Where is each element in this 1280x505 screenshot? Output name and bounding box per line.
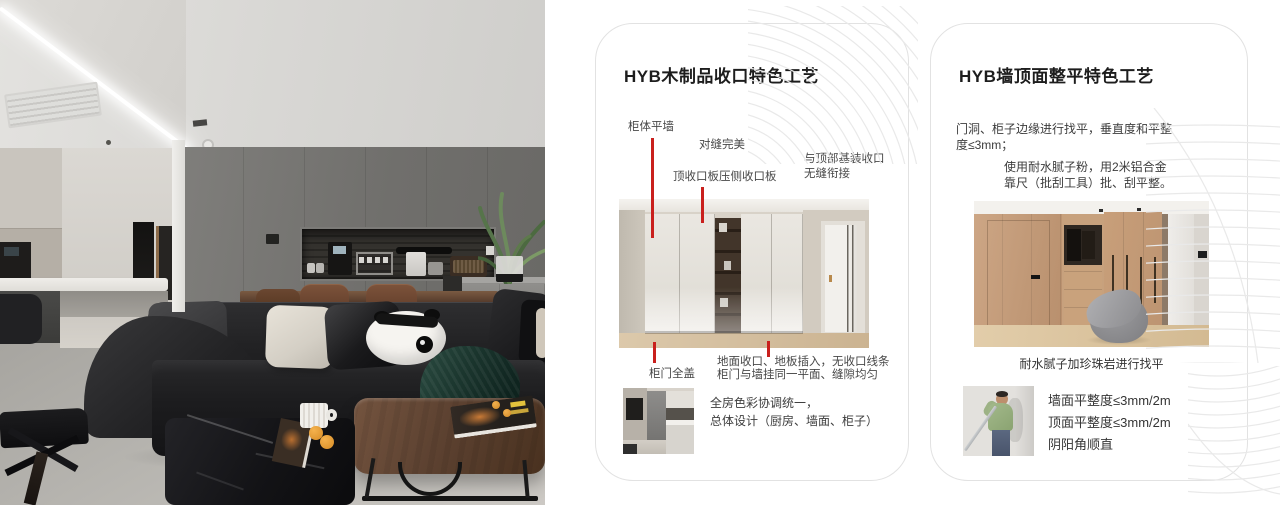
design-summary-line1: 全房色彩协调统一， (710, 394, 878, 412)
spec-ceiling-flatness: 顶面平整度≤3mm/2m (1048, 412, 1171, 434)
hallway-wardrobe-photo (974, 201, 1209, 347)
putty-paragraph-line1: 使用耐水腻子粉，用2米铝合金 (1004, 159, 1172, 175)
photo-downlight (1099, 209, 1103, 212)
grinder (428, 262, 443, 275)
mug-handle (326, 409, 337, 421)
hidden-door-outline (987, 220, 1050, 340)
callout-full-cover-door: 柜门全盖 (649, 367, 695, 382)
floor-join-note: 地面收口、地板插入，无收口线条 柜门与墙挂同一平面、缝隙均匀 (717, 356, 890, 381)
thumb-kitchen-upper (666, 391, 694, 408)
panda-eye-dot (420, 340, 425, 345)
render-side-wall (619, 210, 645, 337)
thumb-kitchen-lower (666, 425, 694, 454)
leader-line (767, 341, 770, 357)
card-wall-leveling-craft: HYB墙顶面整平特色工艺 门洞、柜子边缘进行找平，垂直度和平整 度≤3mm； 使… (930, 23, 1248, 481)
small-orange (492, 401, 500, 409)
door-handle (829, 275, 832, 282)
white-door-ajar (1168, 214, 1194, 341)
small-orange (503, 409, 511, 417)
magazine-cover-art (280, 427, 304, 453)
leveling-paragraph-line2: 度≤3mm； (956, 137, 1172, 153)
floor-join-note-line2: 柜门与墙挂同一平面、缝隙均匀 (717, 369, 890, 382)
leader-line (701, 187, 704, 223)
floor-light-reflection (645, 287, 803, 337)
callout-cabinet-flush-wall: 柜体平墙 (628, 120, 674, 135)
card-wood-trim-craft: HYB木制品收口特色工艺 柜体平墙 对缝完美 顶收口板压侧收口板 与顶部基装收口… (595, 23, 909, 481)
living-room-photo (0, 0, 545, 505)
niche-cup (307, 263, 315, 273)
lounge-chair-back (0, 294, 42, 344)
mug (300, 403, 328, 428)
design-summary-line2: 总体设计（厨房、墙面、柜子） (710, 412, 878, 430)
door-plate (1198, 251, 1207, 258)
door-grooves (847, 225, 857, 332)
shelf-item (719, 223, 727, 232)
callout-ceiling-join: 与顶部基装收口 无缝衔接 (804, 152, 885, 182)
worker-hair (996, 391, 1008, 397)
promo-banner: HYB木制品收口特色工艺 柜体平墙 对缝完美 顶收口板压侧收口板 与顶部基装收口… (0, 0, 1280, 505)
espresso-machine-screen (333, 246, 346, 254)
orange-fruit (320, 435, 334, 449)
spec-corners: 阴阳角顺直 (1048, 434, 1171, 456)
worker-shirt (988, 403, 1013, 431)
magazine-title (509, 408, 528, 415)
coffee-machine-screen (4, 247, 19, 256)
card-title: HYB木制品收口特色工艺 (624, 62, 819, 87)
wardrobe-handle-groove (1154, 257, 1156, 303)
photo-downlight (1137, 208, 1141, 211)
table-frame-bar (362, 496, 538, 501)
floor-join-note-line1: 地面收口、地板插入，无收口线条 (717, 356, 890, 369)
panda-eye (416, 336, 433, 353)
marble-vein (196, 472, 244, 491)
putty-paragraph: 使用耐水腻子粉，用2米铝合金 靠尺（批刮工具）批、刮平整。 (1004, 159, 1172, 191)
kitchen-upper-cabinet (0, 148, 62, 230)
leader-line (653, 342, 656, 363)
wardrobe-render-image (619, 199, 869, 348)
design-summary: 全房色彩协调统一， 总体设计（厨房、墙面、柜子） (710, 394, 878, 430)
shelf-item (724, 261, 731, 270)
worker-leveling-photo-thumb (963, 386, 1034, 456)
magazine-title (510, 400, 526, 407)
spec-wall-flatness: 墙面平整度≤3mm/2m (1048, 390, 1171, 412)
cup-rack (356, 252, 393, 275)
rack-cups (359, 257, 389, 263)
hanging-clothes (1067, 229, 1081, 261)
white-coffee-maker (406, 252, 426, 276)
thumb-sofa (623, 444, 637, 454)
whole-house-photo-thumb (623, 388, 694, 454)
wall-sliver (1194, 214, 1209, 341)
hanging-clothes (1082, 231, 1095, 259)
leader-line (651, 138, 654, 238)
downlight (106, 140, 111, 145)
callout-top-board: 顶收口板压侧收口板 (673, 170, 777, 185)
callout-perfect-seam: 对缝完美 (699, 138, 745, 153)
leveling-paragraph-line1: 门洞、柜子边缘进行找平，垂直度和平整 (956, 121, 1172, 137)
wall-switch (266, 234, 279, 244)
render-wood-floor (619, 333, 869, 348)
door-lever-handle (1031, 275, 1040, 279)
thumb-tv (626, 398, 643, 420)
leveling-paragraph: 门洞、柜子边缘进行找平，垂直度和平整 度≤3mm； (956, 121, 1172, 153)
callout-ceiling-join-line2: 无缝衔接 (804, 167, 885, 182)
kitchen-counter (0, 278, 168, 291)
beige-pillow-edge (536, 308, 545, 358)
toe-kick-shadow (645, 331, 803, 334)
stone-side-table (165, 418, 355, 505)
callout-ceiling-join-line1: 与顶部基装收口 (804, 152, 885, 167)
flatness-specs: 墙面平整度≤3mm/2m 顶面平整度≤3mm/2m 阴阳角顺直 (1048, 390, 1171, 456)
worker-jeans (992, 430, 1010, 456)
marble-vein (187, 414, 273, 444)
plant-vase (496, 256, 523, 282)
wall-corner-trim (172, 140, 185, 312)
putty-perlite-caption: 耐水腻子加珍珠岩进行找平 (974, 355, 1209, 372)
thumb-backsplash (666, 408, 694, 420)
niche-cup (316, 263, 324, 273)
putty-paragraph-line2: 靠尺（批刮工具）批、刮平整。 (1004, 175, 1172, 191)
card-title: HYB墙顶面整平特色工艺 (959, 62, 1154, 87)
